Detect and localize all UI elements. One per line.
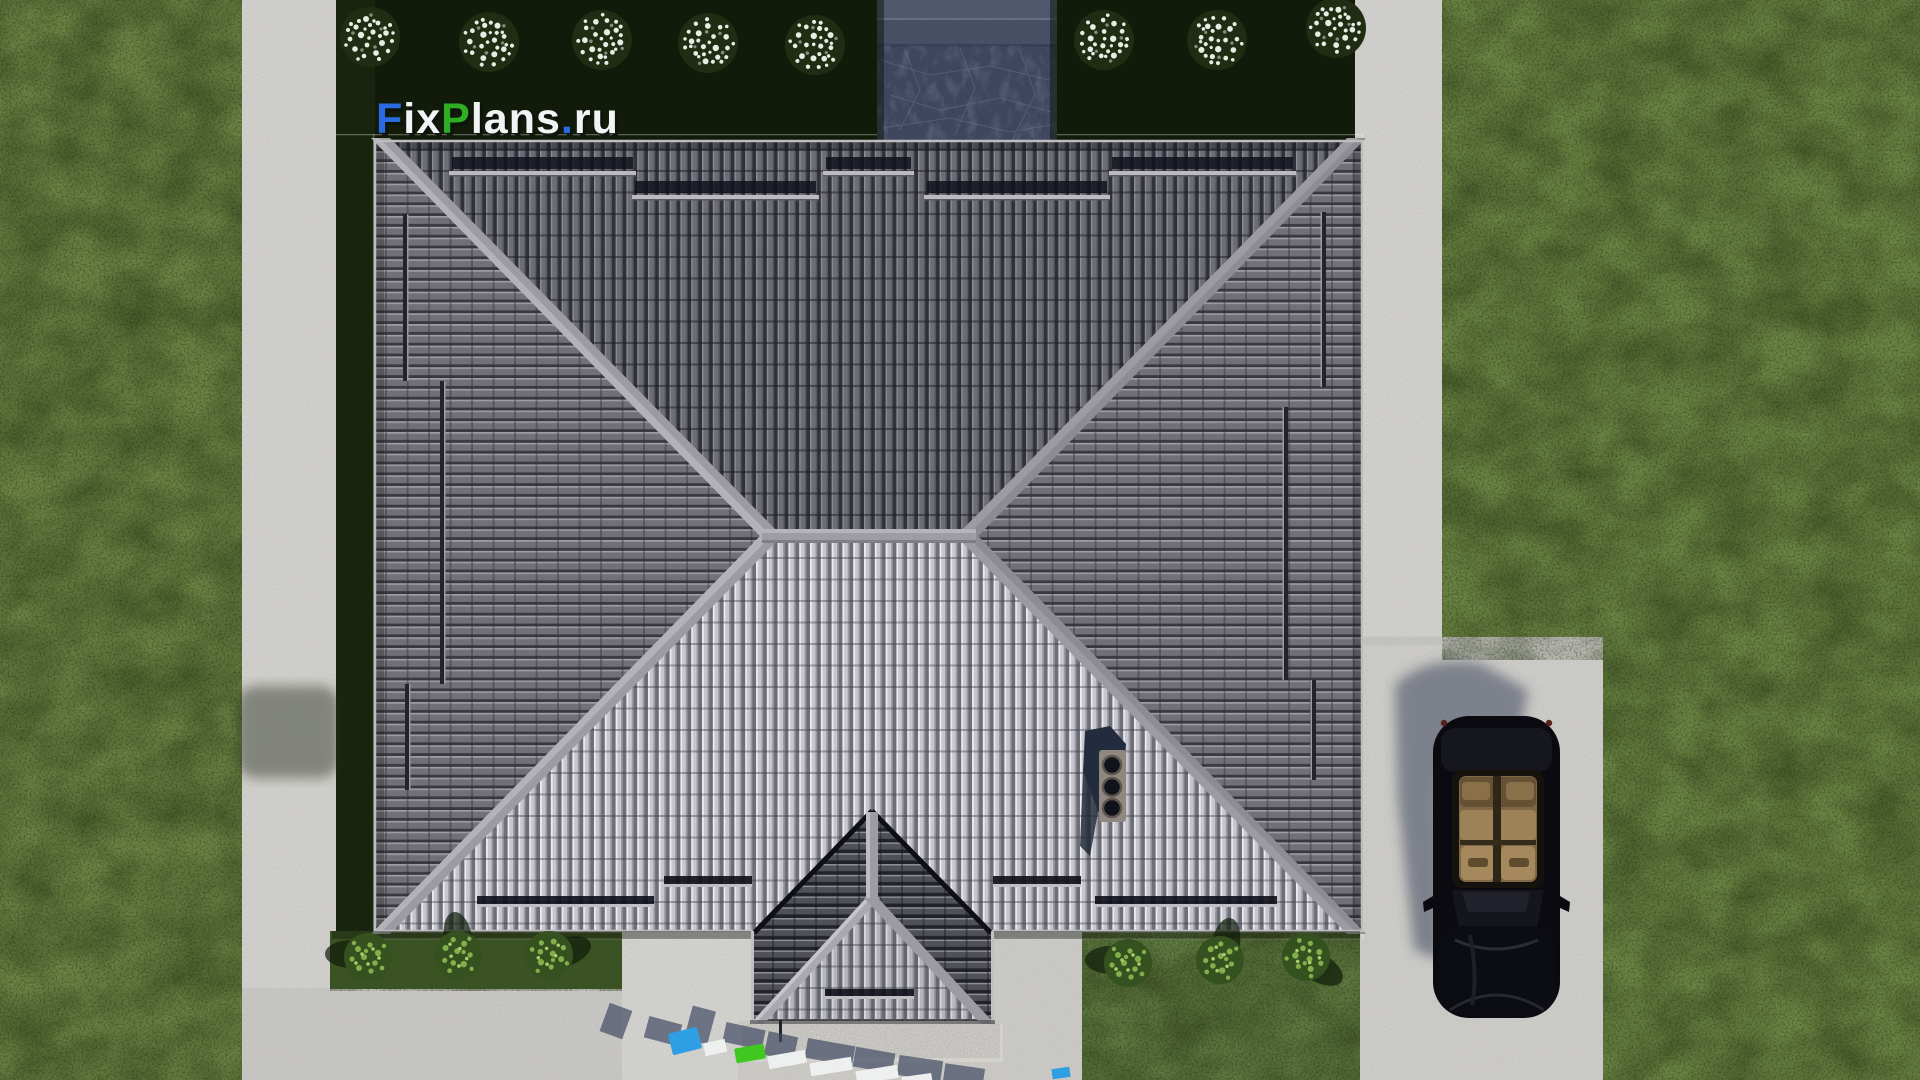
svg-text:FixPlans.ru: FixPlans.ru xyxy=(376,95,619,143)
